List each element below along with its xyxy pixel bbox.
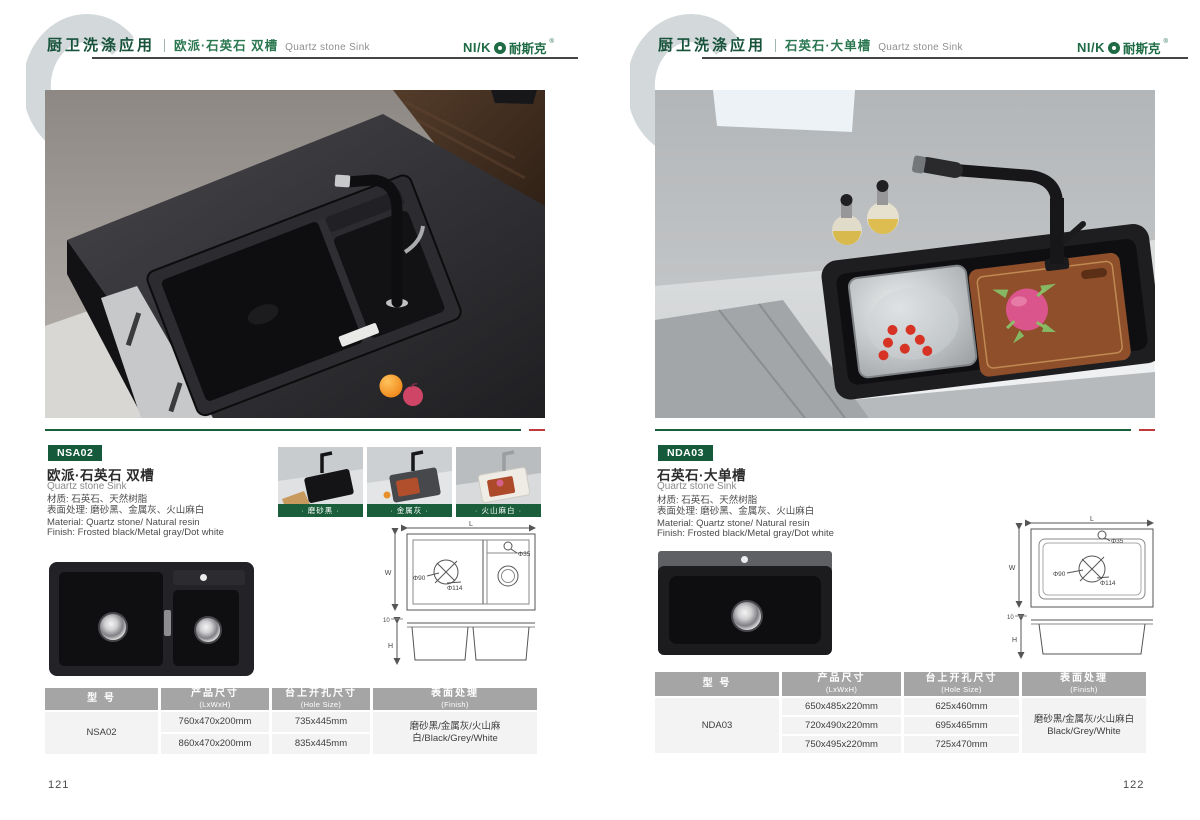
model-badge: NDA03 [658, 445, 713, 461]
cell-hole: 835x445mm [272, 734, 370, 754]
header-subtitle-cn: 石英石·大单槽 [785, 35, 871, 54]
product-image-top-view [655, 548, 835, 660]
col-header-model: 型 号 [45, 688, 158, 710]
bar-stool [491, 90, 537, 104]
faucet-hole [200, 574, 207, 581]
cell-size: 750x495x220mm [782, 736, 901, 753]
drain-left [98, 612, 128, 642]
hero-photo-black-single-sink [655, 90, 1155, 418]
dim-length: L [469, 521, 473, 528]
product-image-top-view [45, 558, 258, 682]
spec-finish-cn: 表面处理: 磨砂黑、金属灰、火山麻白 [657, 506, 814, 517]
col-header-finish: 表面处理(Finish) [373, 688, 537, 710]
divider-red-accent [1139, 429, 1155, 431]
dim-drain-inner: Φ90 [413, 575, 426, 582]
col-header-finish: 表面处理(Finish) [1022, 672, 1146, 696]
product-title-en: Quartz stone Sink [657, 481, 736, 492]
dim-height: H [388, 643, 393, 650]
dim-rim: 10 [1007, 615, 1014, 621]
nisko-logo-o-icon [494, 42, 506, 54]
page-number: 121 [48, 779, 69, 791]
catalog-spread: 厨卫洗涤应用 欧派·石英石 双槽 Quartz stone Sink NI/K … [0, 0, 1200, 820]
cell-size: 650x485x220mm [782, 698, 901, 715]
hero-photo-black-double-sink [45, 90, 545, 418]
spec-finish-cn: 表面处理: 磨砂黑、金属灰、火山麻白 [47, 505, 204, 516]
overflow-trim [164, 610, 171, 636]
stainless-basin [848, 265, 977, 379]
header-divider-bar [775, 39, 776, 52]
orange-fruit [380, 375, 403, 398]
col-header-model: 型 号 [655, 672, 779, 696]
cell-hole: 725x470mm [904, 736, 1019, 753]
section-divider [655, 429, 1155, 431]
col-header-size: 产品尺寸(LxWxH) [161, 688, 269, 710]
spec-material-cn: 材质: 石英石、天然树脂 [657, 495, 757, 506]
header-divider-bar [164, 39, 165, 52]
swatch-label: · 磨砂黑 · [278, 504, 363, 517]
cell-finish: 磨砂黑/金属灰/火山麻白 Black/Grey/White [1022, 698, 1146, 753]
header-subtitle-en: Quartz stone Sink [878, 42, 963, 53]
sink-deck [173, 570, 245, 585]
cell-size: 720x490x220mm [782, 717, 901, 734]
nisko-logo-cn: 耐斯克 [509, 38, 547, 57]
spec-finish-en: Finish: Frosted black/Metal gray/Dot whi… [657, 528, 834, 539]
header-rule [92, 57, 578, 59]
drain-center [731, 600, 763, 632]
apple-fruit [403, 386, 423, 406]
nisko-logo: NI/K 耐斯克 ® [463, 38, 554, 57]
finish-swatches: · 磨砂黑 · · 金属灰 · [278, 447, 541, 517]
faucet-hole [741, 556, 748, 563]
header-subtitle-cn: 欧派·石英石 双槽 [174, 35, 278, 54]
swatch-frosted-black: · 磨砂黑 · [278, 447, 363, 517]
swatch-metal-gray: · 金属灰 · [367, 447, 452, 517]
nisko-logo-latin: NI/K [1077, 40, 1105, 55]
dim-width: W [385, 570, 392, 577]
divider-green-line [655, 429, 1131, 431]
tech-drawing-double-sink: L W Φ35 Φ90 Φ114 10 H [383, 520, 558, 668]
header-rule [702, 57, 1188, 59]
model-badge: NSA02 [48, 445, 102, 461]
page-122: 厨卫洗涤应用 石英石·大单槽 Quartz stone Sink NI/K 耐斯… [600, 0, 1200, 820]
header-subtitle-en: Quartz stone Sink [285, 42, 370, 53]
drain-right [194, 616, 222, 644]
cell-hole: 695x465mm [904, 717, 1019, 734]
swatch-label: · 金属灰 · [367, 504, 452, 517]
section-divider [45, 429, 545, 431]
header-section-title: 厨卫洗涤应用 [658, 34, 766, 55]
nisko-logo: NI/K 耐斯克 ® [1077, 38, 1168, 57]
nisko-logo-latin: NI/K [463, 40, 491, 55]
nisko-logo-o-icon [1108, 42, 1120, 54]
cell-finish: 磨砂黑/金属灰/火山麻白/Black/Grey/White [373, 712, 537, 754]
swatch-label: · 火山麻白 · [456, 504, 541, 517]
page-121: 厨卫洗涤应用 欧派·石英石 双槽 Quartz stone Sink NI/K … [0, 0, 600, 820]
dim-drain-inner: Φ90 [1053, 571, 1066, 578]
cell-hole: 735x445mm [272, 712, 370, 732]
spec-table: 型 号 产品尺寸(LxWxH) 台上开孔尺寸(Hole Size) 表面处理(F… [655, 672, 1155, 753]
nisko-logo-reg: ® [1164, 39, 1168, 45]
col-header-hole: 台上开孔尺寸(Hole Size) [272, 688, 370, 710]
product-title-en: Quartz stone Sink [47, 481, 126, 492]
nisko-logo-reg: ® [550, 39, 554, 45]
spec-table: 型 号 产品尺寸(LxWxH) 台上开孔尺寸(Hole Size) 表面处理(F… [45, 688, 537, 754]
col-header-hole: 台上开孔尺寸(Hole Size) [904, 672, 1019, 696]
page-number: 122 [1123, 779, 1144, 791]
header-section-title: 厨卫洗涤应用 [47, 34, 155, 55]
divider-green-line [45, 429, 521, 431]
swatch-dot-white: · 火山麻白 · [456, 447, 541, 517]
dim-hole: Φ35 [518, 551, 531, 558]
cell-model: NDA03 [655, 698, 779, 753]
dim-width: W [1009, 565, 1016, 572]
page-header: 厨卫洗涤应用 石英石·大单槽 Quartz stone Sink [658, 34, 963, 55]
divider-red-accent [529, 429, 545, 431]
dim-drain-outer: Φ114 [1100, 580, 1116, 587]
cell-model: NSA02 [45, 712, 158, 754]
dim-length: L [1090, 516, 1094, 523]
page-header: 厨卫洗涤应用 欧派·石英石 双槽 Quartz stone Sink [47, 34, 370, 55]
cell-hole: 625x460mm [904, 698, 1019, 715]
spec-material-cn: 材质: 石英石、天然树脂 [47, 494, 147, 505]
col-header-size: 产品尺寸(LxWxH) [782, 672, 901, 696]
tech-drawing-single-sink: L W Φ35 Φ90 Φ114 10 H [1005, 515, 1165, 660]
cell-size: 860x470x200mm [161, 734, 269, 754]
dim-rim: 10 [383, 618, 390, 624]
window-light [713, 90, 855, 132]
dim-hole: Φ35 [1111, 538, 1124, 545]
dim-drain-outer: Φ114 [447, 585, 463, 592]
spec-finish-en: Finish: Frosted black/Metal gray/Dot whi… [47, 527, 224, 538]
nisko-logo-cn: 耐斯克 [1123, 38, 1161, 57]
cell-size: 760x470x200mm [161, 712, 269, 732]
dim-height: H [1012, 637, 1017, 644]
